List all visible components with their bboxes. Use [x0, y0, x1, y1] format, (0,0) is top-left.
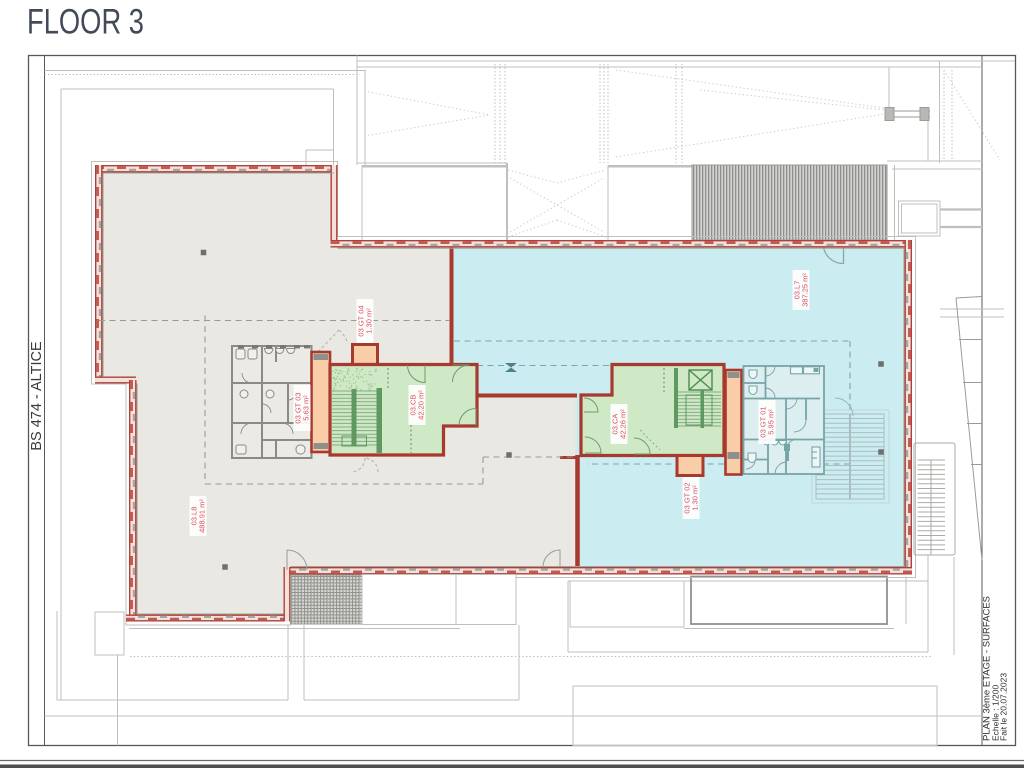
svg-text:FLOOR 3: FLOOR 3	[27, 2, 144, 42]
svg-text:387.25 m²: 387.25 m²	[801, 273, 810, 307]
svg-text:488.91 m²: 488.91 m²	[198, 499, 207, 533]
svg-text:Fait le 20.07.2023: Fait le 20.07.2023	[999, 673, 1009, 741]
svg-text:42.20 m²: 42.20 m²	[417, 390, 426, 420]
svg-text:42.26 m²: 42.26 m²	[619, 409, 628, 439]
svg-text:5.63 m²: 5.63 m²	[302, 395, 311, 421]
svg-text:1.30 m²: 1.30 m²	[691, 485, 700, 511]
svg-text:5.95 m²: 5.95 m²	[767, 409, 776, 435]
svg-text:1.30 m²: 1.30 m²	[365, 308, 374, 334]
svg-text:BS 474 - ALTICE: BS 474 - ALTICE	[29, 341, 45, 451]
